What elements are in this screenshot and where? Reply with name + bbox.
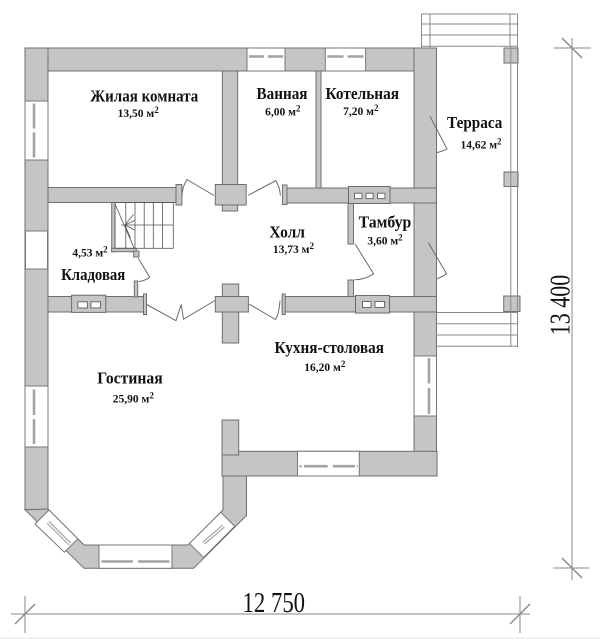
svg-text:14,62 м2: 14,62 м2 bbox=[460, 136, 502, 151]
svg-text:25,90 м2: 25,90 м2 bbox=[113, 391, 155, 406]
svg-text:13 400: 13 400 bbox=[545, 275, 577, 336]
svg-text:Терраса: Терраса bbox=[447, 113, 503, 132]
svg-text:13,50 м2: 13,50 м2 bbox=[118, 105, 160, 120]
svg-text:4,53 м2: 4,53 м2 bbox=[72, 245, 108, 260]
svg-text:Кладовая: Кладовая bbox=[61, 265, 125, 284]
svg-text:Жилая комната: Жилая комната bbox=[90, 87, 198, 106]
svg-text:7,20 м2: 7,20 м2 bbox=[343, 103, 379, 118]
svg-text:16,20 м2: 16,20 м2 bbox=[304, 359, 346, 374]
svg-text:Холл: Холл bbox=[269, 223, 305, 242]
svg-text:3,60 м2: 3,60 м2 bbox=[367, 233, 403, 248]
svg-text:Кухня-столовая: Кухня-столовая bbox=[275, 338, 385, 357]
svg-text:12 750: 12 750 bbox=[243, 587, 306, 619]
svg-text:13,73 м2: 13,73 м2 bbox=[273, 241, 315, 256]
svg-text:Котельная: Котельная bbox=[326, 84, 400, 103]
svg-text:Гостиная: Гостиная bbox=[97, 369, 162, 388]
svg-text:6,00 м2: 6,00 м2 bbox=[265, 104, 301, 119]
svg-text:Тамбур: Тамбур bbox=[359, 213, 412, 232]
svg-text:Ванная: Ванная bbox=[257, 84, 308, 103]
